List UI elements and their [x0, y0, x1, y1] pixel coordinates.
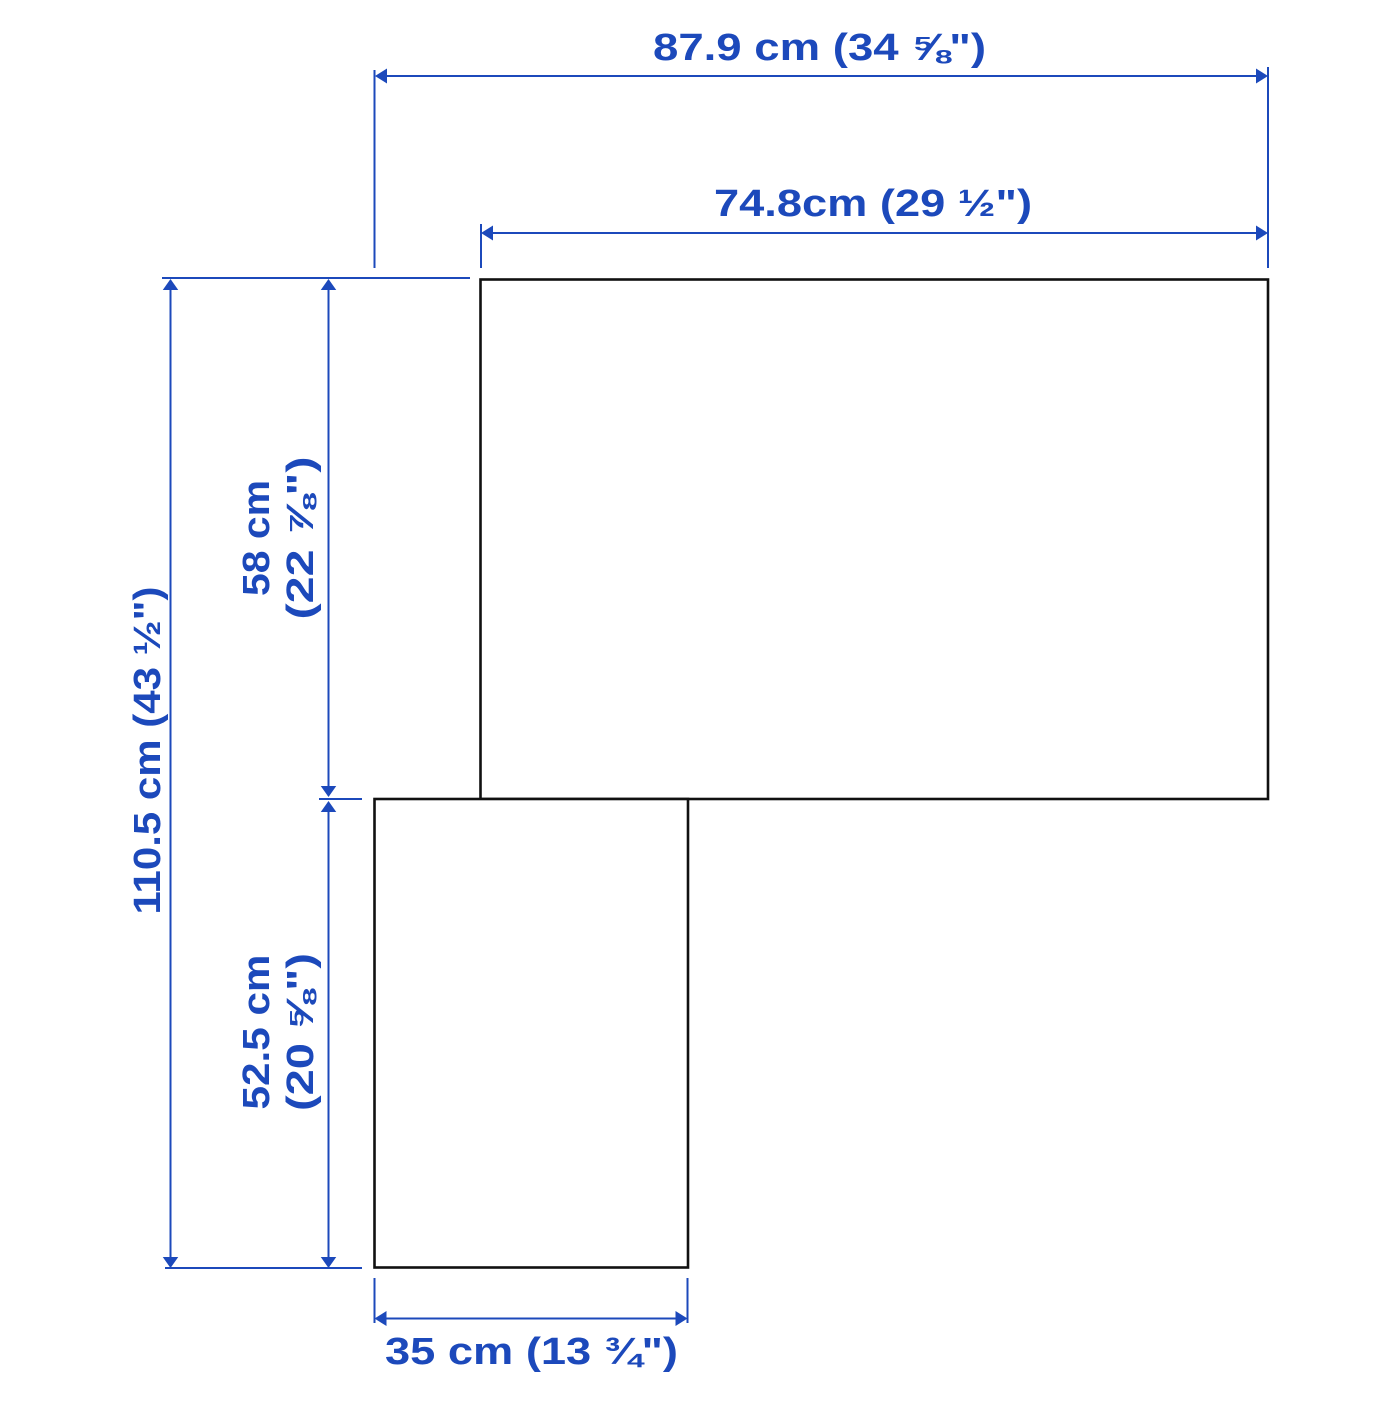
svg-text:(20 ⅝"): (20 ⅝"): [280, 953, 322, 1111]
svg-text:110.5 cm (43 ½"): 110.5 cm (43 ½"): [127, 587, 169, 915]
svg-text:52.5 cm: 52.5 cm: [236, 955, 278, 1110]
svg-text:35 cm (13 ¾"): 35 cm (13 ¾"): [385, 1331, 678, 1373]
svg-text:58 cm: 58 cm: [236, 480, 278, 596]
svg-text:(22 ⅞"): (22 ⅞"): [280, 457, 322, 620]
svg-text:74.8cm (29 ½"): 74.8cm (29 ½"): [714, 183, 1032, 225]
svg-text:87.9 cm (34 ⅝"): 87.9 cm (34 ⅝"): [653, 27, 986, 69]
